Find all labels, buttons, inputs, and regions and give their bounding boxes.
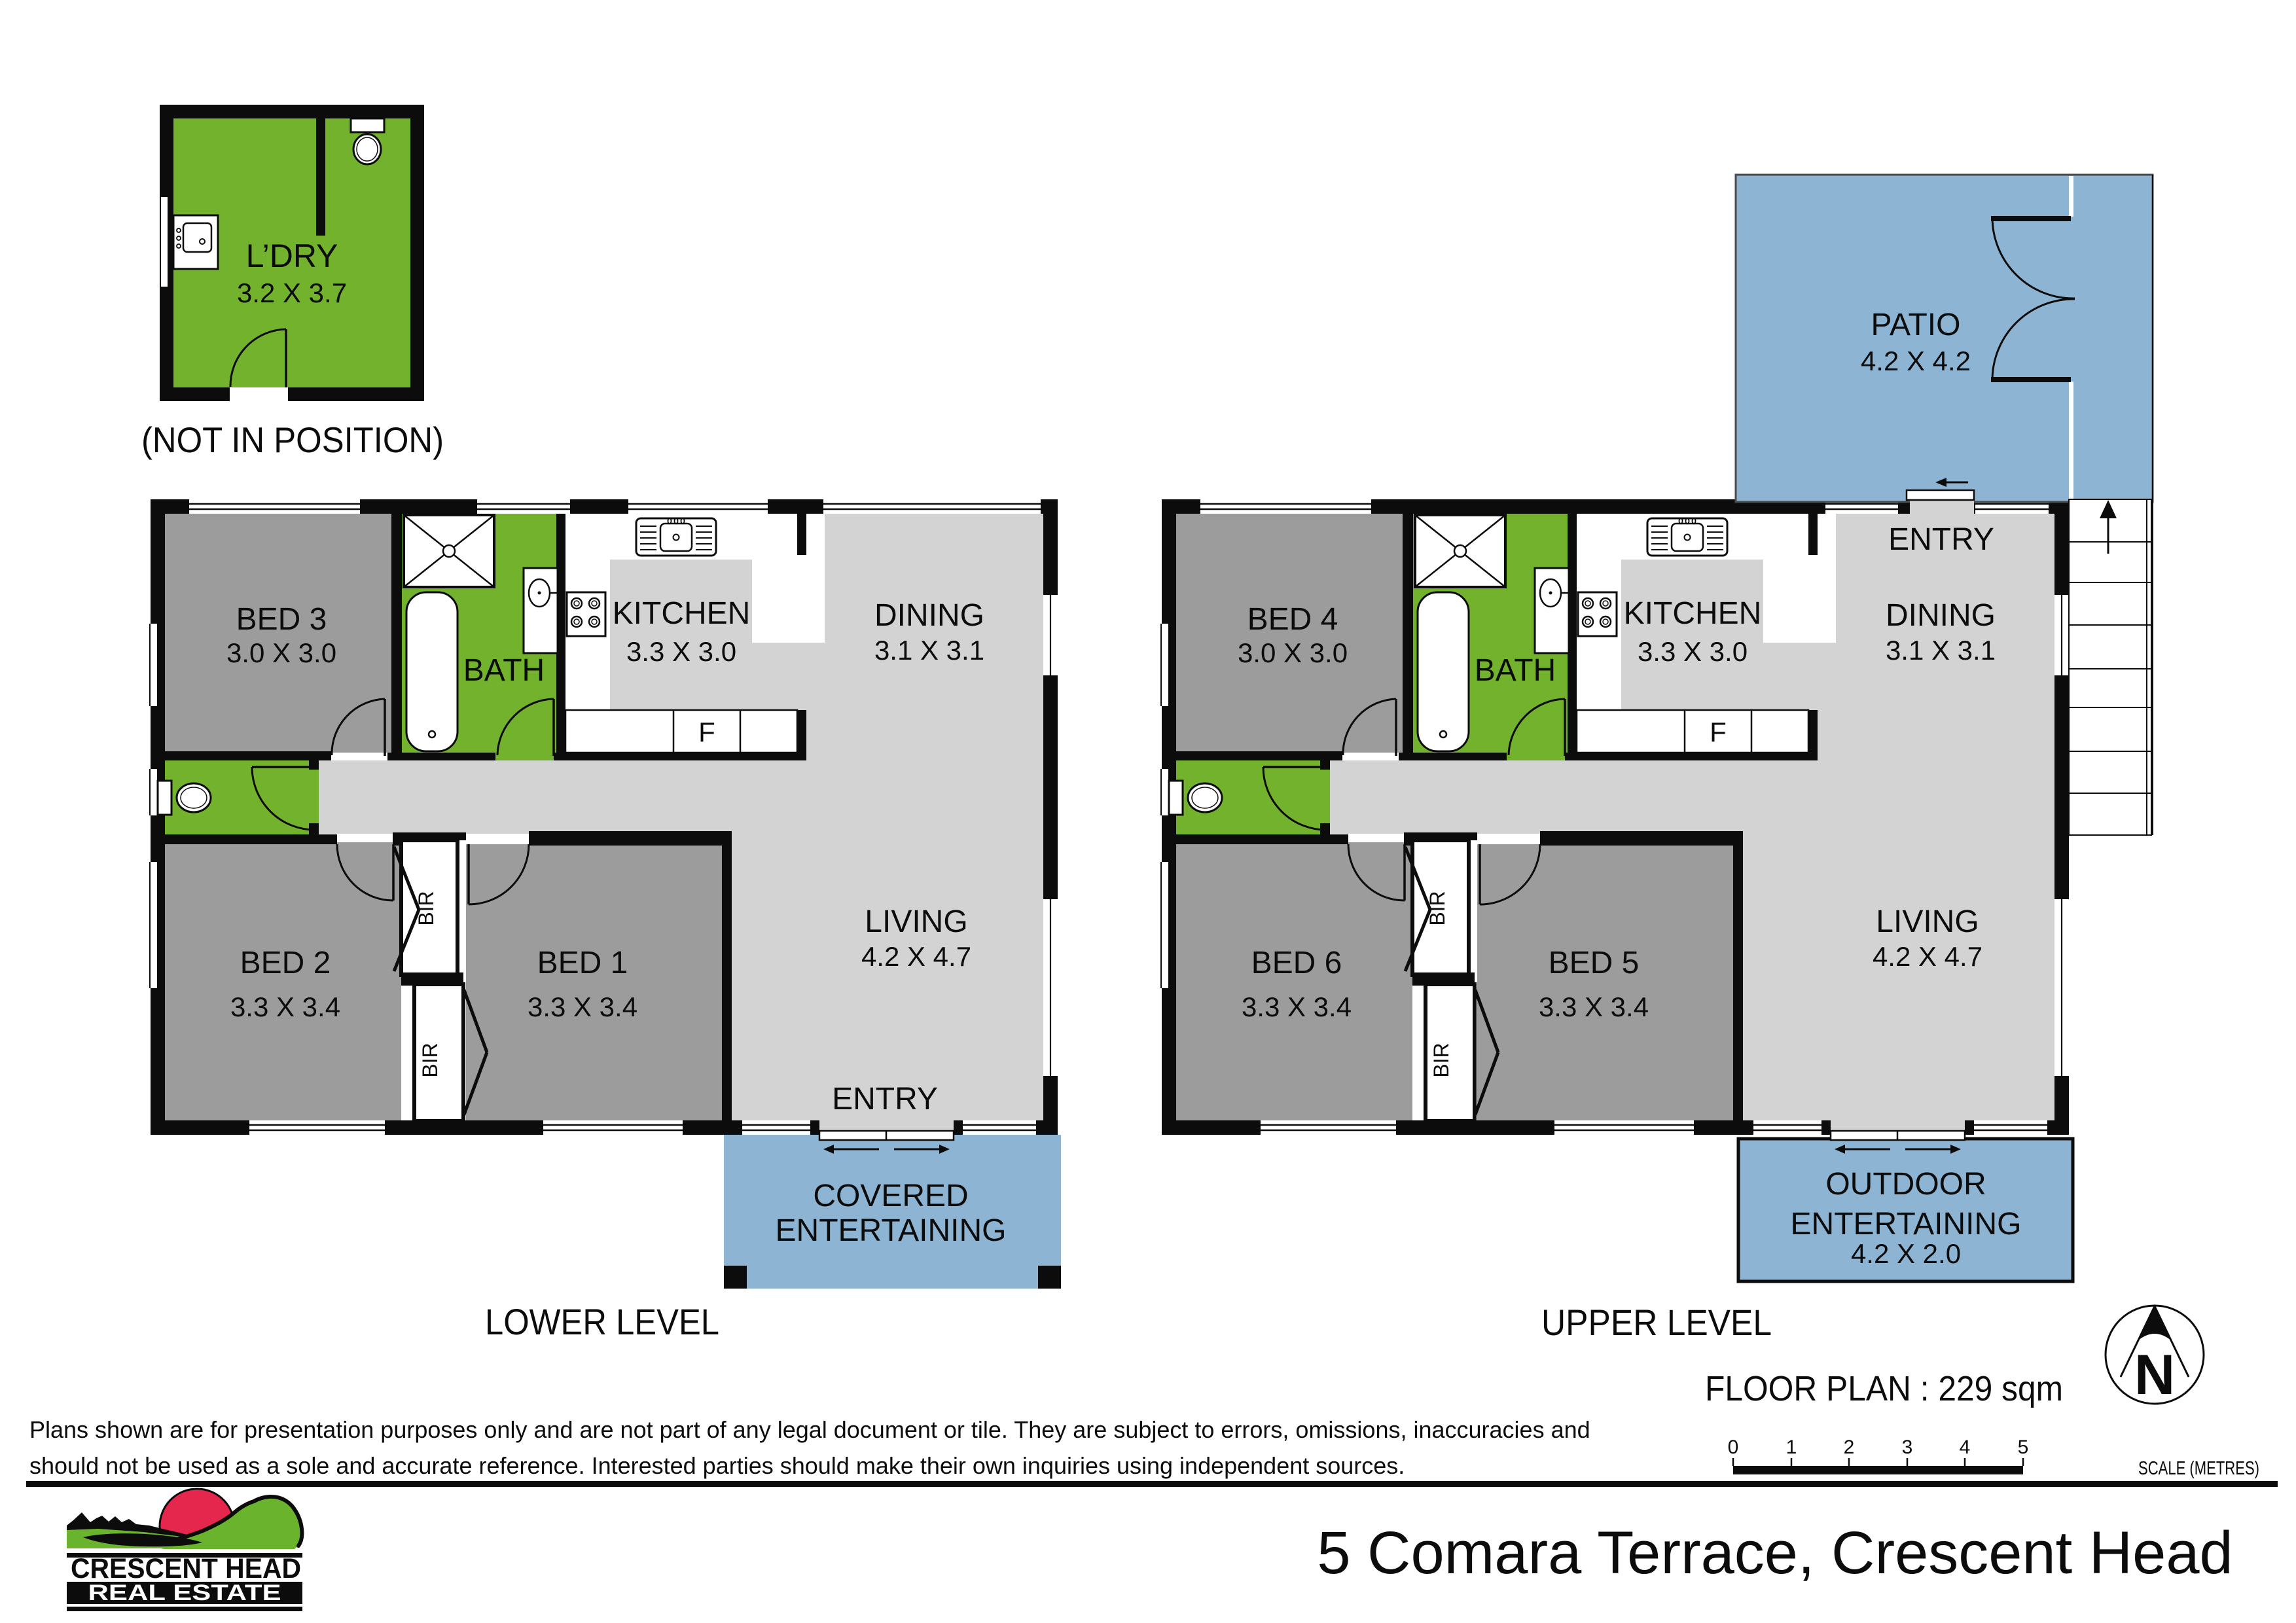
svg-text:SCALE (METRES): SCALE (METRES): [2138, 1458, 2259, 1479]
svg-text:BIR: BIR: [418, 1043, 442, 1077]
svg-text:PATIO: PATIO: [1871, 308, 1961, 342]
svg-text:4.2 X 4.7: 4.2 X 4.7: [861, 941, 971, 972]
svg-text:F: F: [698, 717, 715, 747]
svg-text:BED 3: BED 3: [236, 602, 327, 637]
svg-text:BIR: BIR: [1429, 1043, 1453, 1077]
svg-text:UPPER LEVEL: UPPER LEVEL: [1541, 1302, 1772, 1343]
svg-text:N: N: [2134, 1344, 2175, 1406]
svg-text:should not be used as a sole a: should not be used as a sole and accurat…: [29, 1452, 1405, 1479]
svg-text:L’DRY: L’DRY: [246, 238, 338, 274]
svg-text:F: F: [1710, 717, 1727, 747]
svg-text:OUTDOOR: OUTDOOR: [1825, 1167, 1986, 1202]
svg-text:Plans shown are for presentati: Plans shown are for presentation purpose…: [29, 1416, 1590, 1443]
svg-text:2: 2: [1844, 1436, 1855, 1458]
svg-text:BED 6: BED 6: [1251, 946, 1342, 980]
svg-text:ENTRY: ENTRY: [832, 1082, 938, 1116]
svg-text:CRESCENT HEAD: CRESCENT HEAD: [71, 1553, 301, 1584]
svg-text:BED 5: BED 5: [1549, 946, 1640, 980]
svg-text:ENTRY: ENTRY: [1888, 522, 1994, 557]
svg-text:BATH: BATH: [463, 653, 545, 688]
svg-text:5: 5: [2018, 1436, 2029, 1458]
svg-text:BED 4: BED 4: [1247, 602, 1338, 637]
svg-text:KITCHEN: KITCHEN: [1624, 596, 1762, 631]
svg-text:BED 1: BED 1: [537, 946, 628, 980]
svg-text:LIVING: LIVING: [1876, 904, 1979, 939]
svg-text:LOWER LEVEL: LOWER LEVEL: [485, 1301, 719, 1342]
svg-text:3.3 X 3.0: 3.3 X 3.0: [1638, 636, 1748, 667]
svg-text:3.3 X 3.4: 3.3 X 3.4: [528, 991, 637, 1022]
svg-text:ENTERTAINING: ENTERTAINING: [776, 1213, 1007, 1248]
svg-text:DINING: DINING: [874, 598, 984, 633]
svg-text:1: 1: [1786, 1436, 1797, 1458]
svg-text:4: 4: [1960, 1436, 1971, 1458]
svg-text:BED 2: BED 2: [240, 946, 331, 980]
svg-text:REAL ESTATE: REAL ESTATE: [88, 1580, 281, 1605]
svg-text:(NOT IN POSITION): (NOT IN POSITION): [141, 419, 444, 460]
svg-text:0: 0: [1728, 1436, 1739, 1458]
svg-text:3: 3: [1902, 1436, 1913, 1458]
svg-text:LIVING: LIVING: [865, 904, 967, 939]
svg-text:3.0 X 3.0: 3.0 X 3.0: [1238, 637, 1348, 668]
svg-text:4.2 X 4.7: 4.2 X 4.7: [1873, 941, 1982, 972]
svg-text:FLOOR PLAN : 229 sqm: FLOOR PLAN : 229 sqm: [1705, 1369, 2063, 1408]
svg-text:3.1 X 3.1: 3.1 X 3.1: [874, 635, 984, 666]
svg-text:KITCHEN: KITCHEN: [613, 596, 751, 631]
svg-text:3.3 X 3.0: 3.3 X 3.0: [626, 636, 736, 667]
svg-text:3.0 X 3.0: 3.0 X 3.0: [226, 637, 336, 668]
svg-text:3.3 X 3.4: 3.3 X 3.4: [230, 991, 340, 1022]
svg-text:3.1 X 3.1: 3.1 X 3.1: [1886, 635, 1996, 666]
svg-text:4.2 X 4.2: 4.2 X 4.2: [1861, 346, 1971, 376]
svg-text:3.2 X 3.7: 3.2 X 3.7: [237, 277, 347, 308]
svg-text:3.3 X 3.4: 3.3 X 3.4: [1242, 991, 1352, 1022]
svg-text:4.2 X 2.0: 4.2 X 2.0: [1851, 1238, 1961, 1269]
svg-text:DINING: DINING: [1886, 598, 1996, 633]
svg-text:BATH: BATH: [1475, 653, 1556, 688]
svg-text:3.3 X 3.4: 3.3 X 3.4: [1539, 991, 1649, 1022]
svg-text:ENTERTAINING: ENTERTAINING: [1791, 1207, 2022, 1241]
svg-text:5 Comara Terrace, Crescent Hea: 5 Comara Terrace, Crescent Head: [1317, 1520, 2233, 1586]
svg-text:COVERED: COVERED: [813, 1179, 968, 1213]
